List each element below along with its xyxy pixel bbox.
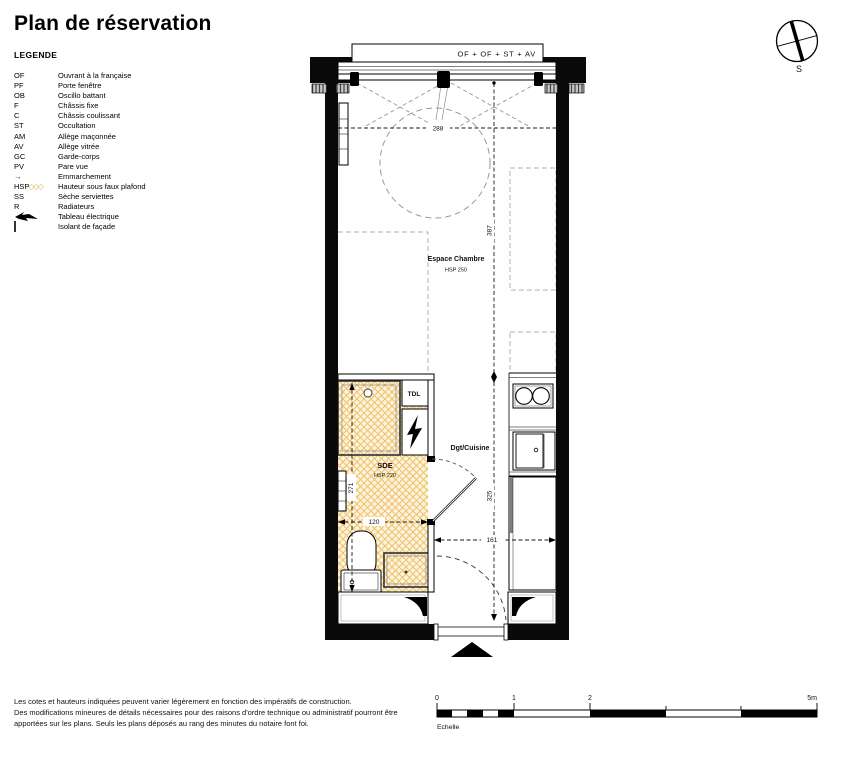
hob [513,384,553,408]
kitchen-sink [513,432,555,470]
scale-0: 0 [435,695,439,702]
kitchen-block [509,373,556,590]
vanity-unit [384,553,429,587]
towel-radiator [338,471,346,511]
scale-2: 2 [588,695,592,702]
label-hsp-220: HSP 220 [374,473,396,479]
scale-bar: 0 1 2 5m Echelle [435,695,817,731]
electrical-panel [402,409,428,455]
entrance-arrow-icon [451,642,493,657]
label-dgt-cuisine: Dgt/Cuisine [451,445,490,452]
compass: S [777,21,818,75]
bed-zone-outline [338,232,428,374]
entrance-door [437,556,506,620]
shower-drain [364,389,372,397]
shower [338,381,400,455]
furniture-zone-lower [510,332,556,373]
tall-unit [509,477,556,590]
dim-120: 120 [369,519,380,526]
entrance-threshold [434,624,508,657]
plan-sheet: Plan de réservation LEGENDE OFOuvrant à … [0,0,848,758]
label-hsp-250: HSP 250 [445,268,467,274]
sde-door [432,459,476,521]
window-center-marks [436,85,448,120]
scale-5m: 5m [807,695,817,702]
radiator [339,103,348,165]
dim-288: 288 [433,126,444,133]
scale-1: 1 [512,695,516,702]
dim-387: 387 [487,225,494,236]
dim-325: 325 [487,490,494,501]
dim-271: 271 [348,482,355,493]
floor-plan-drawing: OF + OF + ST + AV 288 387 325 271 120 [0,0,848,758]
label-sde: SDE [377,461,392,470]
label-tdl: TDL [408,391,421,398]
window-label: OF + OF + ST + AV [457,50,536,59]
label-espace-chambre: Espace Chambre [428,256,485,263]
dim-161: 161 [487,537,498,544]
window-assembly: OF + OF + ST + AV [338,44,556,88]
compass-south-label: S [796,64,802,74]
duct-shaft-right [508,592,556,624]
furniture-zone-upper [510,168,556,290]
duct-shaft-left [338,592,428,624]
scale-caption: Echelle [437,724,460,731]
